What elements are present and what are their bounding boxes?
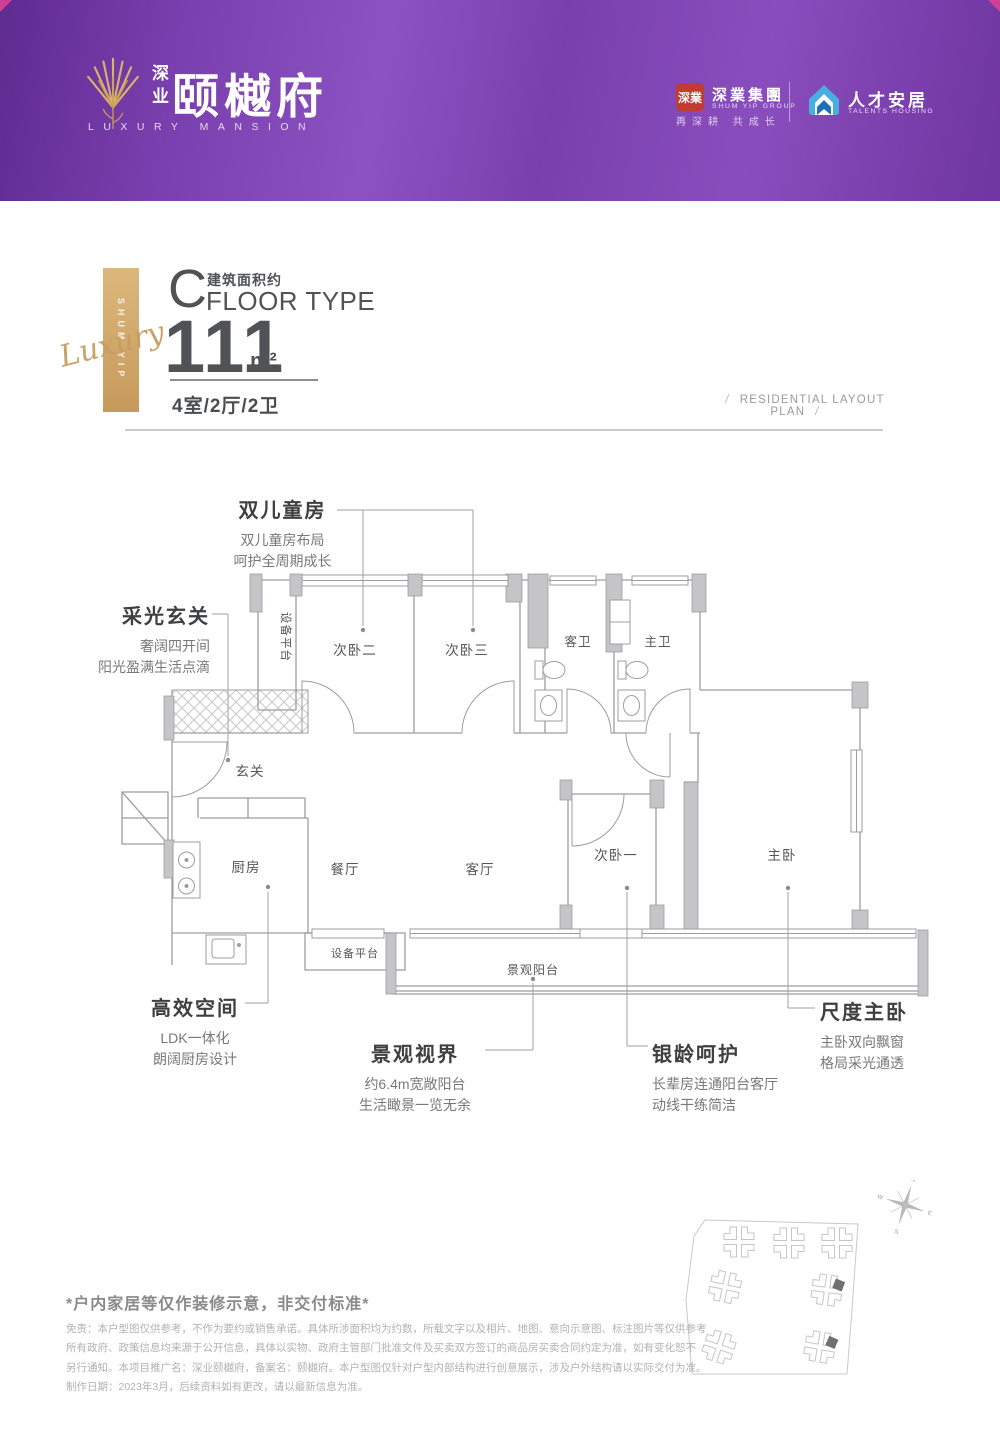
callout-title: 尺度主卧: [820, 996, 940, 1025]
callout-line: 格局采光通透: [820, 1053, 940, 1074]
callout-title: 双儿童房: [225, 494, 340, 523]
callout-title: 银龄呵护: [652, 1038, 792, 1067]
talents-housing-icon: [804, 80, 844, 120]
brand-cn-small: 深业: [146, 64, 171, 110]
callout-kitchen: 高效空间 LDK一体化 朗阔厨房设计: [145, 992, 245, 1070]
room-label-living: 客厅: [466, 861, 495, 877]
disclaimer-line: 另行通知。本项目推广名：深业颐樾府，备案名：颐樾府。本户型图仅针对户型内部结构进…: [66, 1359, 666, 1378]
callout-line: 朗阔厨房设计: [145, 1049, 245, 1070]
room-label-guest-bath: 客卫: [564, 634, 591, 649]
callout-elder: 银龄呵护 长辈房连通阳台客厅 动线干练简洁: [652, 1038, 792, 1116]
shumyip-slogan: 再深耕 共成长: [676, 113, 781, 128]
callout-master-bed: 尺度主卧 主卧双向飘窗 格局采光通透: [820, 996, 940, 1074]
corner-accent-top-right: [988, 0, 1000, 12]
callout-line: 双儿童房布局: [225, 530, 340, 551]
callout-balcony: 景观视界 约6.4m宽敞阳台 生活瞰景一览无余: [352, 1038, 478, 1116]
plan-caption: /RESIDENTIAL LAYOUT PLAN/: [700, 394, 900, 418]
callout-line: 阳光盈满生活点滴: [92, 657, 210, 678]
callout-children-room: 双儿童房 双儿童房布局 呵护全周期成长: [225, 494, 340, 572]
partner-divider: [789, 82, 790, 122]
brand-name-en: LUXURY MANSION: [88, 121, 315, 133]
spec-divider: [170, 379, 318, 381]
talents-name-en: TALENTS HOUSING: [848, 108, 934, 115]
rooms-summary: 4室/2厅/2卫: [172, 391, 279, 418]
room-label-equipment-bottom: 设备平台: [331, 946, 379, 960]
room-label-kitchen: 厨房: [232, 860, 261, 875]
room-label-bed1: 次卧一: [594, 848, 638, 863]
compass-w: W: [876, 1194, 884, 1202]
room-label-bed2: 次卧二: [333, 643, 377, 658]
callout-line: 奢阔四开间: [92, 636, 210, 657]
shumyip-name-en: SHUM YIP GROUP: [712, 103, 797, 110]
section-divider-line: [125, 429, 883, 431]
callout-line: 呵护全周期成长: [225, 551, 340, 572]
callout-line: 主卧双向飘窗: [820, 1032, 940, 1053]
compass-s: S: [893, 1229, 899, 1236]
fixtures: [173, 600, 648, 964]
shumyip-seal-logo: 深業: [676, 83, 704, 111]
site-buildings: [700, 1227, 852, 1366]
room-label-dining: 餐厅: [331, 862, 360, 877]
decoration-notice: *户内家居等仅作装修示意，非交付标准*: [66, 1290, 369, 1314]
room-label-balcony: 景观阳台: [507, 962, 559, 977]
callout-line: 长辈房连通阳台客厅: [652, 1074, 792, 1095]
corner-accent-top-left: [0, 0, 12, 12]
callout-line: 约6.4m宽敞阳台: [352, 1074, 478, 1095]
callout-line: 生活瞰景一览无余: [352, 1095, 478, 1116]
site-plan: N E S W: [672, 1180, 962, 1395]
callout-title: 高效空间: [145, 992, 245, 1021]
disclaimer-line: 制作日期：2023年3月，后续资料如有更改，请以最新信息为准。: [66, 1378, 666, 1397]
room-label-master-bath: 主卫: [644, 635, 671, 649]
callout-foyer: 采光玄关 奢阔四开间 阳光盈满生活点滴: [92, 600, 210, 678]
slash-right: /: [805, 406, 829, 418]
brand-name: 颐樾府: [172, 58, 328, 127]
poster-page: 深业 颐樾府 LUXURY MANSION 深業 深業集團 SHUM YIP G…: [0, 0, 1000, 1436]
room-label-foyer: 玄关: [236, 763, 265, 779]
callout-line: 动线干练简洁: [652, 1095, 792, 1116]
callout-title: 景观视界: [352, 1038, 478, 1067]
callout-title: 采光玄关: [92, 600, 210, 629]
entry-hatch-area: [172, 690, 308, 733]
room-label-equipment-top: 设备平台: [279, 612, 293, 662]
compass-n: N: [910, 1180, 916, 1184]
room-labels: 设备平台 次卧二 次卧三 客卫 主卫 玄关 厨房 餐厅 客厅 次卧一 主卧 设备…: [232, 612, 797, 977]
compass-icon: N E S W: [868, 1180, 941, 1244]
disclaimer-block: 免责：本户型图仅供参考，不作为要约或销售承诺。具体所涉面积均为约数，所载文字以及…: [66, 1320, 666, 1398]
header-banner: 深业 颐樾府 LUXURY MANSION 深業 深業集團 SHUM YIP G…: [0, 0, 1000, 201]
slash-left: /: [715, 394, 739, 406]
disclaimer-line: 所有政府、政策信息均来源于公开信息，具体以实物、政府主管部门批准文件及买卖双方签…: [66, 1339, 666, 1358]
room-label-bed3: 次卧三: [445, 643, 489, 658]
callout-line: LDK一体化: [145, 1028, 245, 1049]
area-value: 111: [164, 304, 285, 389]
compass-e: E: [927, 1211, 933, 1218]
shumyip-name-cn: 深業集團: [712, 84, 784, 105]
area-unit: m²: [250, 348, 277, 374]
disclaimer-line: 免责：本户型图仅供参考，不作为要约或销售承诺。具体所涉面积均为约数，所载文字以及…: [66, 1320, 666, 1339]
room-label-master-bed: 主卧: [768, 848, 797, 863]
